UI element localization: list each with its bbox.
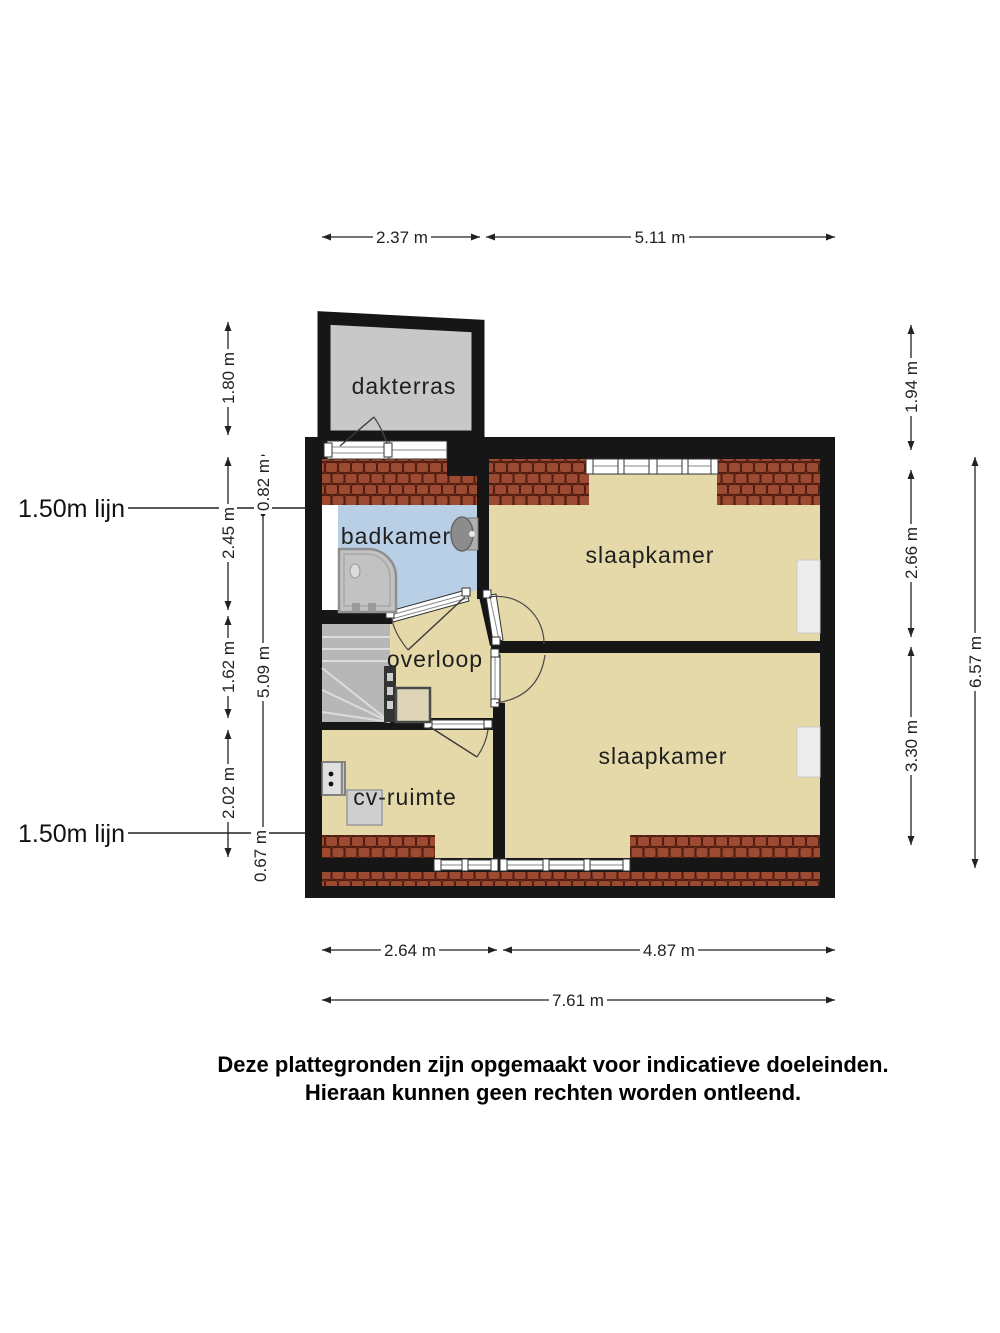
wall-between-bedrooms xyxy=(491,641,820,653)
closet xyxy=(396,688,430,722)
dim-label: 5.11 m xyxy=(635,228,686,247)
floor-plan: dakterras badkamer slaapkamer overloop s… xyxy=(0,0,1000,1333)
room-label-cv-ruimte: cv-ruimte xyxy=(353,784,457,810)
height-line-label: 1.50m lijn xyxy=(18,820,125,848)
dim-label: 0.82 m xyxy=(254,459,273,511)
dim-label: 2.02 m xyxy=(219,767,238,819)
room-label-slaapkamer-top: slaapkamer xyxy=(586,542,715,568)
dim-inner-span: 5.09 m xyxy=(254,514,273,835)
dim-left-terrace-depth: 1.80 m xyxy=(219,322,238,435)
dim-label: 2.37 m xyxy=(376,228,428,247)
dim-label: 1.62 m xyxy=(219,641,238,693)
wall-stub-top xyxy=(447,437,483,476)
room-label-dakterras: dakterras xyxy=(352,373,457,399)
roof-band-bottom-outer xyxy=(322,872,820,886)
room-label-overloop: overloop xyxy=(387,646,483,672)
dim-bottom-right-width: 4.87 m xyxy=(503,941,835,960)
dim-right-total: 6.57 m xyxy=(966,457,985,868)
bathtub xyxy=(339,549,396,612)
toilet xyxy=(451,517,478,551)
disclaimer-line-2: Hieraan kunnen geen rechten worden ontle… xyxy=(305,1080,801,1105)
dim-label: 7.61 m xyxy=(552,991,604,1010)
dim-label: 2.64 m xyxy=(384,941,436,960)
dim-label: 2.45 m xyxy=(219,507,238,559)
dim-left-cv: 2.02 m xyxy=(219,730,238,857)
drain-icon xyxy=(350,564,360,578)
floorplan-page: dakterras badkamer slaapkamer overloop s… xyxy=(0,0,1000,1333)
roof-band-top-right xyxy=(717,459,820,505)
dim-top-main-width: 5.11 m xyxy=(486,228,835,247)
dim-right-slaapkamer-bottom: 3.30 m xyxy=(902,647,921,845)
dim-label: 3.30 m xyxy=(902,720,921,772)
boiler xyxy=(322,762,345,795)
dim-bottom-total: 7.61 m xyxy=(322,991,835,1010)
dim-label: 1.94 m xyxy=(902,361,921,413)
dim-bottom-left-width: 2.64 m xyxy=(322,941,497,960)
dormer-window-top xyxy=(586,459,718,474)
dim-label: 6.57 m xyxy=(966,636,985,688)
bottom-windows xyxy=(434,859,630,871)
room-label-badkamer: badkamer xyxy=(341,523,451,549)
dim-top-terrace-width: 2.37 m xyxy=(322,228,480,247)
room-label-slaapkamer-bottom: slaapkamer xyxy=(599,743,728,769)
dim-label: 4.87 m xyxy=(643,941,695,960)
dim-right-slaapkamer-top: 2.66 m xyxy=(902,470,921,637)
dim-left-badkamer: 2.45 m xyxy=(219,457,238,610)
height-line-label: 1.50m lijn xyxy=(18,495,125,523)
wall-recess-top xyxy=(797,560,820,633)
faucet-icon xyxy=(352,603,360,612)
dim-label: 1.80 m xyxy=(219,352,238,404)
dim-inner-top-offset: 0.82 m xyxy=(254,455,273,517)
dim-inner-bottom-offset: 0.67 m xyxy=(251,827,270,885)
dim-right-terrace: 1.94 m xyxy=(902,325,921,450)
stairs xyxy=(322,624,396,722)
dim-label: 5.09 m xyxy=(254,646,273,698)
disclaimer-line-1: Deze plattegronden zijn opgemaakt voor i… xyxy=(217,1052,888,1077)
dim-label: 0.67 m xyxy=(251,830,270,882)
roof-band-bottom-left-inner xyxy=(322,835,435,858)
wall-badkamer-right xyxy=(477,459,489,599)
faucet-icon xyxy=(368,603,376,612)
disclaimer: Deze plattegronden zijn opgemaakt voor i… xyxy=(217,1052,888,1105)
badkamer-low-headroom-strip xyxy=(322,505,338,616)
wall-recess-bottom xyxy=(797,727,820,777)
roof-band-bottom-right-inner xyxy=(630,835,820,858)
dim-left-stairs: 1.62 m xyxy=(219,616,238,718)
dim-label: 2.66 m xyxy=(902,527,921,579)
